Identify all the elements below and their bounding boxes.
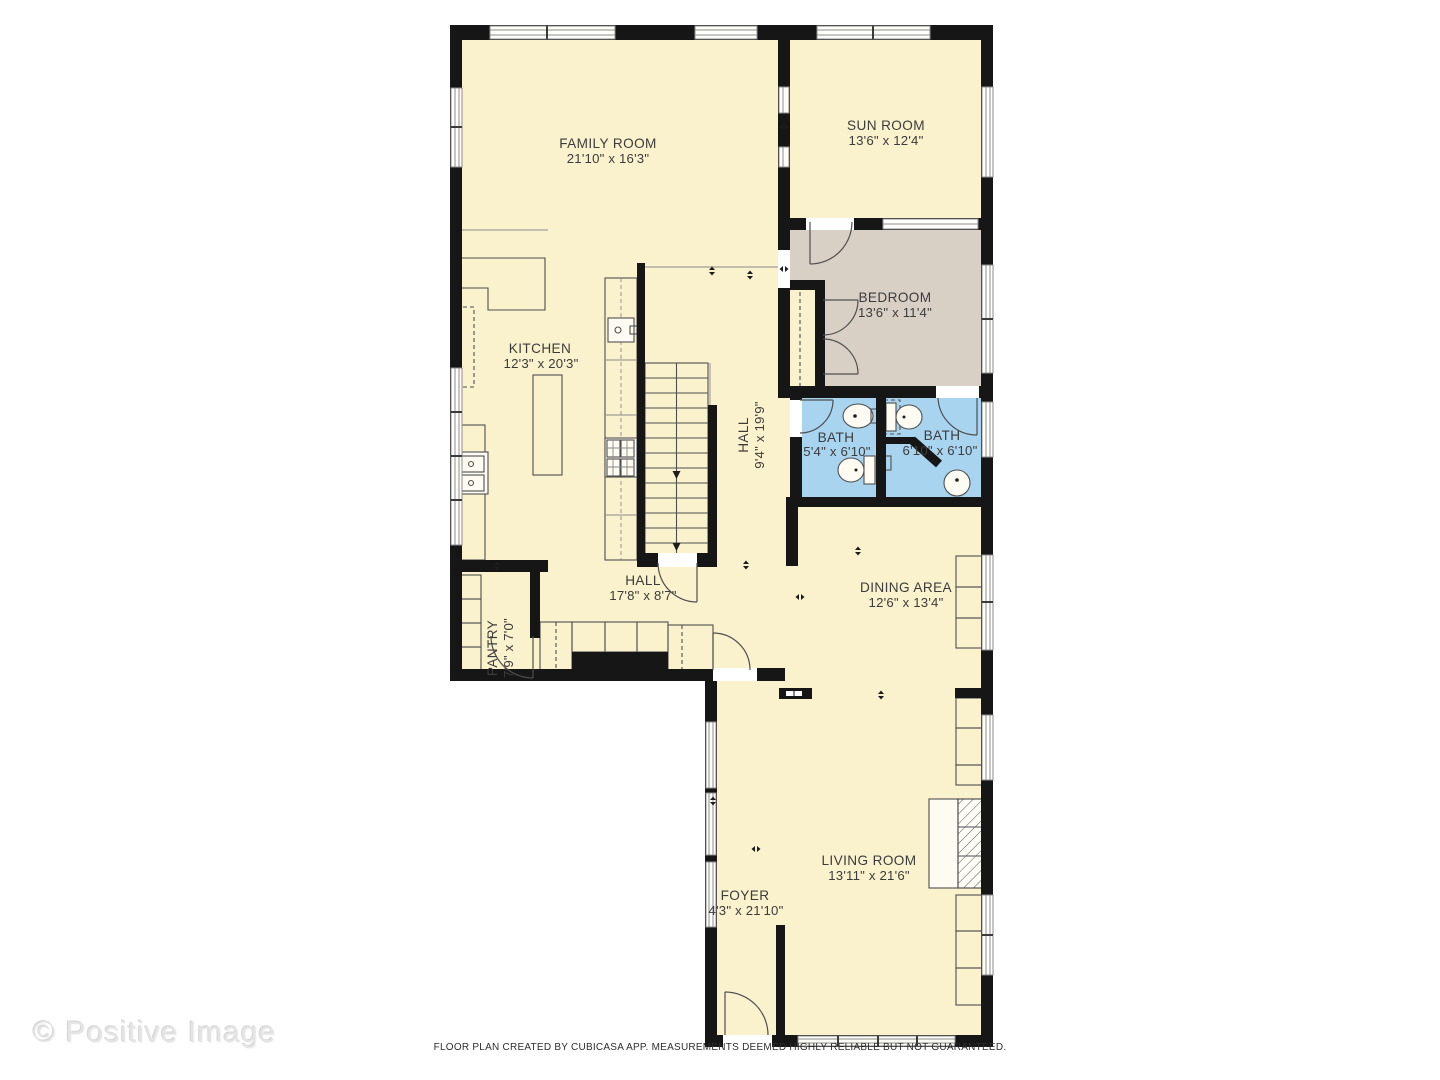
window [706,722,716,788]
window [982,555,993,650]
sink [944,470,970,496]
foyer-label: FOYER [721,888,770,903]
window [779,87,789,113]
bedroom-dims: 13'6" x 11'4" [858,305,932,320]
hall-upper-label: HALL [736,417,751,453]
hall-upper-dims: 9'4" x 19'9" [752,401,767,469]
interior-window [883,219,978,229]
cooktop-burners [605,438,637,477]
sun-room-dims: 13'6" x 12'4" [849,133,924,148]
bath-left-label: BATH [818,430,855,445]
window [451,368,462,545]
wall-right [981,25,993,1047]
window [982,402,993,457]
bath-left-dims: 5'4" x 6'10" [803,444,871,459]
window [779,147,789,167]
living-room-label: LIVING ROOM [821,853,916,868]
hall-lower-dims: 17'8" x 8'7" [609,588,677,603]
footer-disclaimer: FLOOR PLAN CREATED BY CUBICASA APP. MEAS… [0,1042,1440,1053]
family-room-dims: 21'10" x 16'3" [567,151,650,166]
fireplace [929,799,982,888]
foyer-dims: 4'3" x 21'10" [709,903,784,918]
window [982,265,993,373]
dining-sideboard [779,688,812,699]
dining-area-label: DINING AREA [860,580,953,595]
window [490,26,615,39]
bedroom-label: BEDROOM [858,290,931,305]
dining-area-dims: 12'6" x 13'4" [869,595,944,610]
toilet [838,456,875,484]
living-room-dims: 13'11" x 21'6" [828,868,910,883]
bath-right-dims: 6'10" x 6'10" [903,443,978,458]
window [982,715,993,780]
family-room-label: FAMILY ROOM [559,136,657,151]
hall-lower-label: HALL [625,573,661,588]
kitchen-label: KITCHEN [509,341,571,356]
window [982,87,993,177]
bath-right-label: BATH [924,428,961,443]
window [817,26,930,39]
floor-plan-drawing: FAMILY ROOM 21'10" x 16'3" SUN ROOM 13'6… [0,0,1440,1080]
kitchen-dims: 12'3" x 20'3" [504,356,579,371]
floor-plan-page: FAMILY ROOM 21'10" x 16'3" SUN ROOM 13'6… [0,0,1440,1080]
sun-room-label: SUN ROOM [847,118,925,133]
window [695,26,757,39]
window [982,895,993,975]
wall-oven [608,318,637,342]
window [451,88,462,167]
pantry-label: PANTRY [485,620,500,676]
pantry-dims: 7'9" x 7'0" [501,618,516,678]
